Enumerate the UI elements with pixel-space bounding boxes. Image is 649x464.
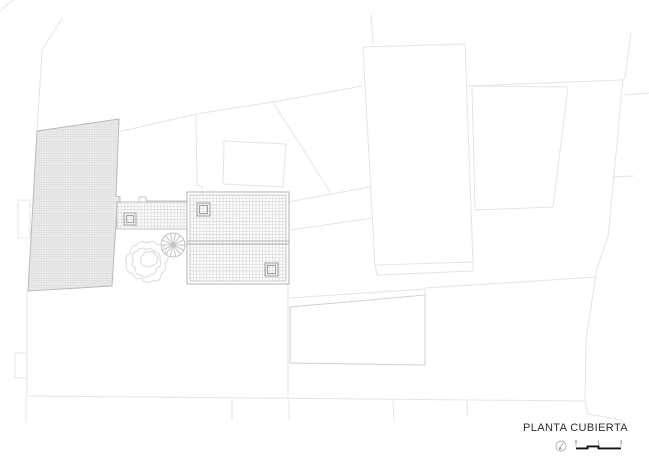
scale-label-1: 1 [597, 440, 600, 445]
main-roof [187, 192, 289, 284]
scale-legend: 0 1 2 [550, 438, 628, 454]
sheet: PLANTA CUBIERTA 0 1 2 [0, 0, 649, 464]
hatched-roof [20, 115, 125, 295]
site-plan-drawing [0, 0, 649, 464]
north-arrow-icon [556, 441, 566, 451]
scale-bar: 0 1 2 [575, 440, 623, 449]
neighbor-building [290, 295, 425, 365]
terrace-grid [117, 202, 187, 229]
scale-label-2: 2 [620, 440, 623, 445]
drawing-title: PLANTA CUBIERTA [523, 422, 628, 434]
spiral-stair [161, 233, 185, 257]
title-block: PLANTA CUBIERTA [523, 422, 628, 434]
scale-label-0: 0 [575, 440, 578, 445]
